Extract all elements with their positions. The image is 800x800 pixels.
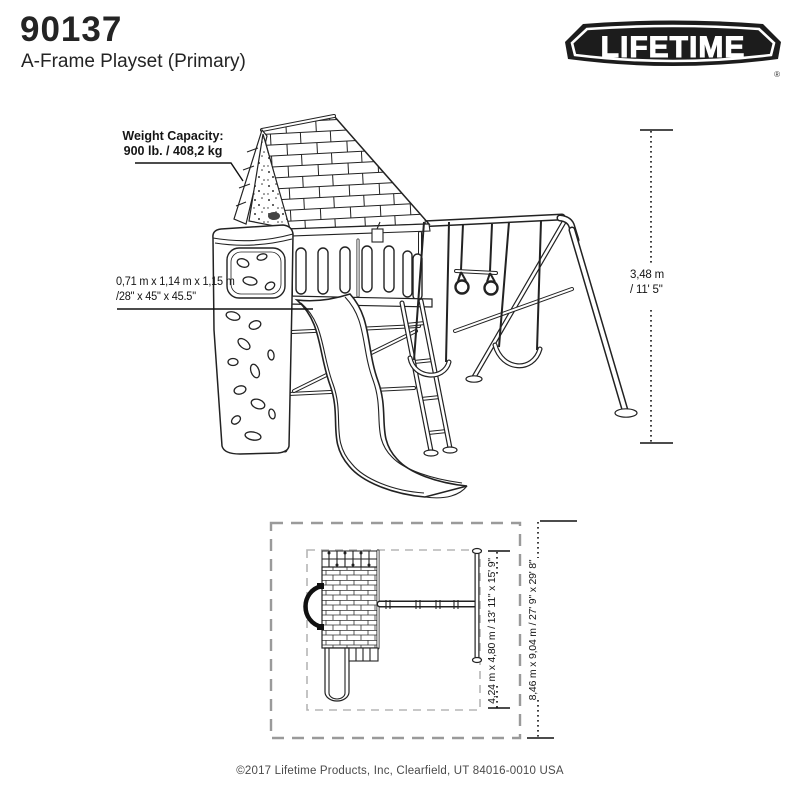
tower-dimensions-label: 0,71 m x 1,14 m x 1,15 m /28" x 45" x 45… [116, 275, 235, 305]
top-view-playset [306, 549, 482, 702]
weight-capacity-title: Weight Capacity: [98, 129, 248, 144]
tower-dimensions-imperial: /28" x 45" x 45.5" [116, 290, 235, 305]
swing-frame [420, 217, 637, 417]
top-view-boundaries [271, 523, 520, 738]
tower-dimensions-metric: 0,71 m x 1,14 m x 1,15 m [116, 275, 235, 290]
safety-zone-outline [271, 523, 520, 738]
copyright-line: ©2017 Lifetime Products, Inc, Clearfield… [0, 765, 800, 777]
playset-technical-illustration [0, 0, 800, 800]
overall-height-imperial: / 11' 5" [630, 283, 664, 298]
climbing-tower [213, 225, 293, 454]
safety-zone-dimensions-label: 8,46 m x 9,04 m / 27' 9" x 29' 8" [527, 560, 539, 701]
play-area-dimensions-label: 4,24 m x 4,80 m / 13' 11" x 15' 9" [486, 558, 498, 704]
weight-capacity-label: Weight Capacity: 900 lb. / 408,2 kg [98, 129, 248, 159]
clubhouse-roof [234, 116, 430, 236]
overall-height-label: 3,48 m / 11' 5" [630, 268, 664, 298]
overall-height-metric: 3,48 m [630, 268, 664, 283]
weight-capacity-value: 900 lb. / 408,2 kg [98, 144, 248, 159]
